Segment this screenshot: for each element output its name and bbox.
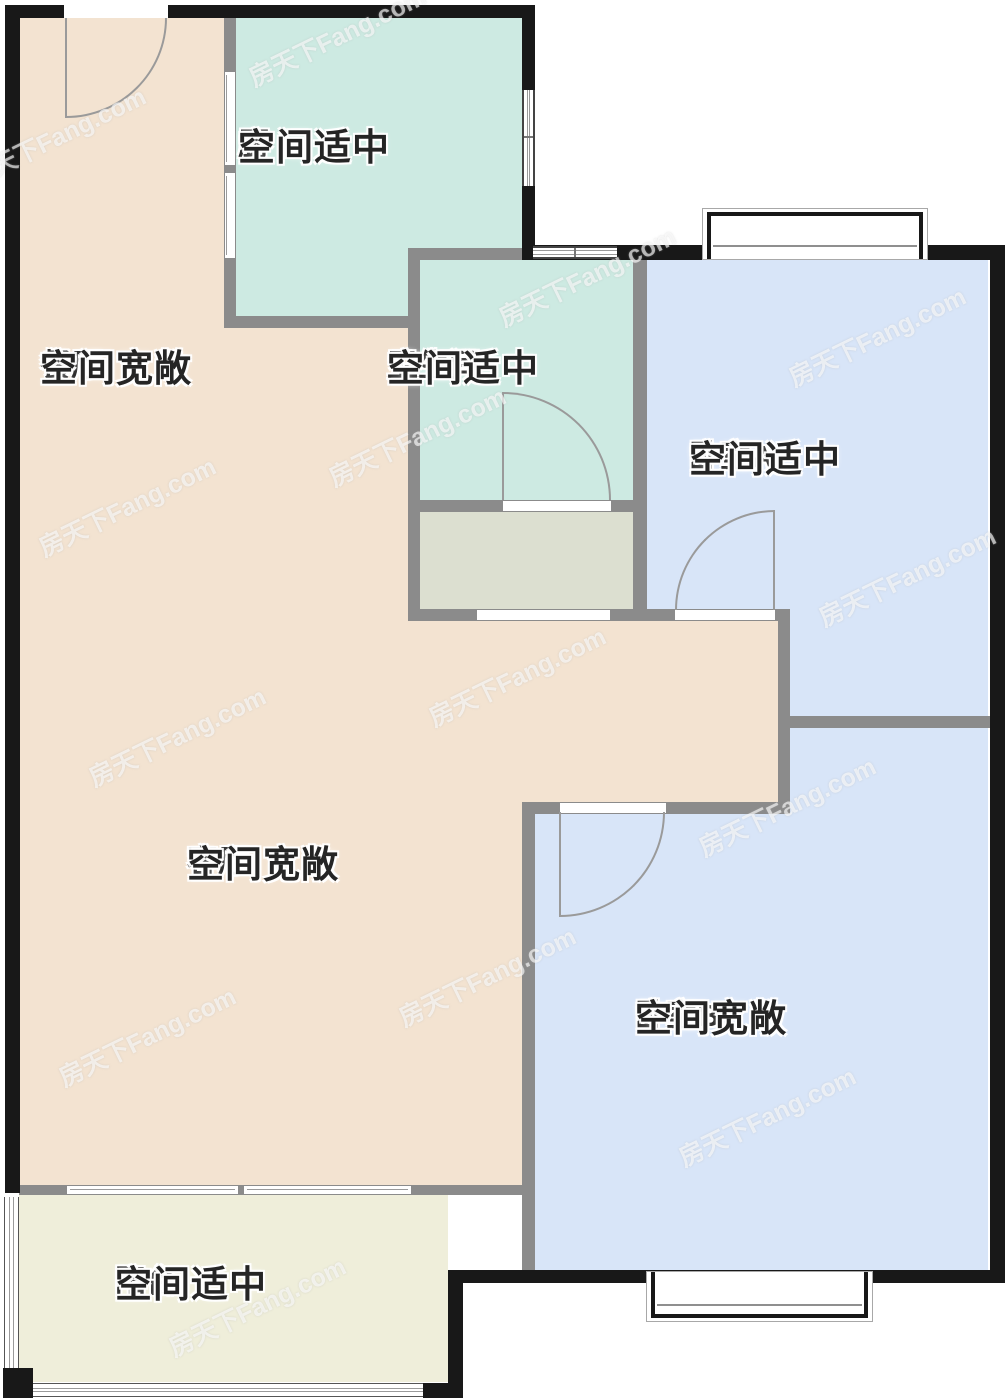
window-balcony-bottom-mullion-1 <box>33 1388 423 1389</box>
floor-plan: 厨 空间适中 餐厅 空间宽敞 卫生间 空间适中 卧室A 空间适中 客厅 空间宽敞… <box>0 0 1005 1400</box>
room-note-bedroom-a: 空间适中 <box>689 437 841 483</box>
bay-window-bedroom-a-frame <box>707 212 923 259</box>
window-balcony-bottom <box>33 1383 423 1397</box>
wall-kitchen-bottom <box>224 316 420 328</box>
wall-hall-right <box>778 609 790 814</box>
room-note-dining: 空间宽敞 <box>40 346 192 392</box>
balcony-slide-panel-1 <box>70 1189 235 1190</box>
kitchen-slide-panel-1 <box>226 75 227 162</box>
wall-bedroom-a-b <box>790 716 990 728</box>
bay-window-bedroom-b <box>646 1271 873 1322</box>
room-note-kitchen: 空间适中 <box>238 125 390 171</box>
opening-utility <box>477 610 610 620</box>
opening-balcony-slide-2 <box>244 1186 411 1194</box>
bay-window-bedroom-a <box>702 208 928 260</box>
balcony-slide-panel-2 <box>247 1189 408 1190</box>
opening-bedroom-a-door <box>675 610 775 620</box>
window-balcony-left-mullion-2 <box>13 1197 14 1368</box>
room-utility-shaft <box>420 512 635 609</box>
bay-window-bedroom-b-frame <box>651 1272 868 1318</box>
window-balcony-left-mullion-1 <box>9 1197 10 1368</box>
wall-bedroom-b-left <box>522 802 535 1270</box>
window-kitchen <box>522 90 535 186</box>
room-note-bedroom-b: 空间宽敞 <box>635 996 787 1042</box>
room-note-bathroom: 空间适中 <box>387 346 539 392</box>
room-hallway <box>527 621 790 802</box>
room-bedroom-b-upper <box>790 728 988 812</box>
wall-bathroom-right <box>633 260 647 609</box>
window-bathroom-top <box>533 246 617 259</box>
window-kitchen-mullion-2 <box>529 90 530 186</box>
room-bedroom-a-lower <box>790 609 988 716</box>
opening-bathroom-door <box>503 501 611 511</box>
room-note-balcony: 空间适中 <box>115 1262 267 1308</box>
exterior-wall-balcony-corner-right <box>423 1383 463 1398</box>
wall-bathroom-left <box>408 248 420 621</box>
window-bathroom-top-divider <box>574 248 576 257</box>
exterior-wall-balcony-right <box>448 1270 463 1398</box>
bay-window-bedroom-b-glass-line <box>657 1304 862 1306</box>
wall-bathroom-top <box>420 248 527 260</box>
kitchen-slide-panel-2 <box>226 176 227 255</box>
window-balcony-left <box>4 1197 19 1368</box>
exterior-wall-left <box>5 5 20 1193</box>
bay-window-bedroom-a-glass-line <box>713 245 917 247</box>
opening-balcony-slide-1 <box>67 1186 238 1194</box>
exterior-wall-top-middle <box>168 5 535 18</box>
window-kitchen-divider <box>524 136 533 138</box>
exterior-wall-right <box>990 245 1005 1283</box>
room-note-living: 空间宽敞 <box>187 842 339 888</box>
window-kitchen-mullion-1 <box>527 90 528 186</box>
window-balcony-bottom-mullion-2 <box>33 1391 423 1392</box>
exterior-wall-balcony-corner-left <box>3 1368 33 1398</box>
